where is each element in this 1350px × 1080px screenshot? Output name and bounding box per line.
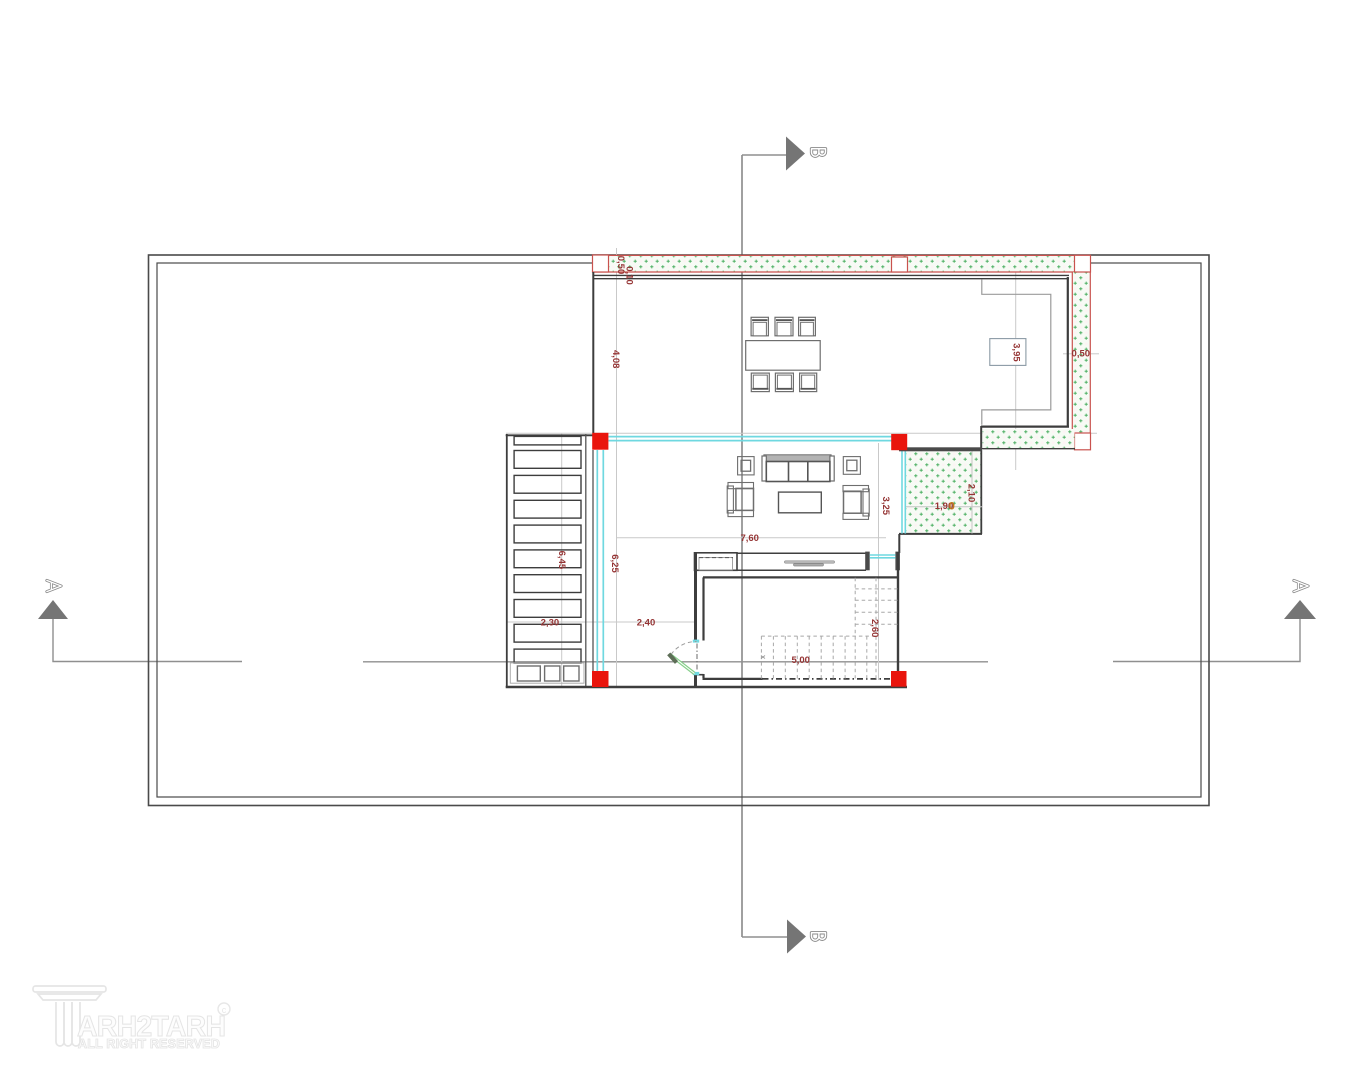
svg-text:4,08: 4,08 — [610, 350, 621, 369]
svg-text:2,40: 2,40 — [637, 618, 656, 629]
svg-text:5,00: 5,00 — [791, 655, 810, 666]
svg-text:6,25: 6,25 — [609, 554, 620, 573]
svg-text:2,60: 2,60 — [869, 619, 880, 638]
svg-text:2,30: 2,30 — [541, 618, 560, 629]
svg-text:ALL RIGHT RESERVED: ALL RIGHT RESERVED — [78, 1037, 220, 1051]
svg-text:6,45: 6,45 — [556, 551, 567, 570]
svg-text:0,50: 0,50 — [1072, 349, 1091, 360]
svg-text:7,60: 7,60 — [740, 533, 759, 544]
svg-text:c: c — [222, 1005, 227, 1015]
svg-text:0: 0 — [949, 501, 955, 513]
svg-text:3,25: 3,25 — [880, 497, 891, 516]
svg-text:3,95: 3,95 — [1010, 343, 1021, 362]
svg-text:2,10: 2,10 — [965, 484, 976, 503]
svg-text:0,10: 0,10 — [623, 266, 634, 285]
